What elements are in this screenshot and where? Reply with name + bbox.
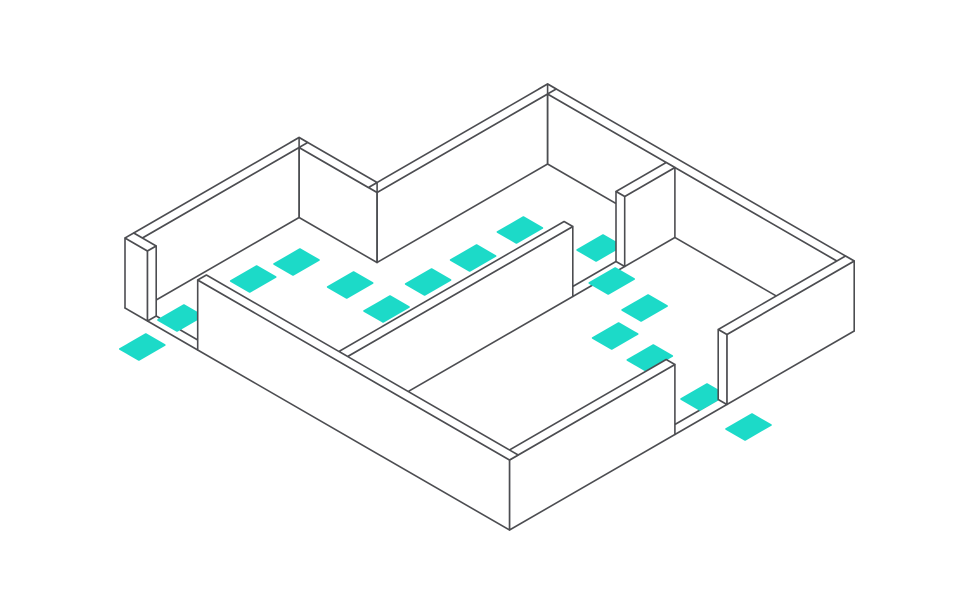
footprint-marker — [328, 272, 373, 298]
footprint-marker — [589, 268, 634, 294]
footprint-marker — [120, 334, 165, 360]
isometric-floorplan-illustration — [0, 0, 980, 600]
footprint-marker — [231, 266, 276, 292]
footprint-marker — [726, 414, 771, 440]
se-door-jamb — [718, 330, 727, 405]
west-door-jamb — [148, 246, 157, 321]
footprint-marker — [158, 305, 203, 331]
wall-front-right-south-face — [510, 365, 675, 531]
footprint-marker — [593, 323, 638, 349]
divider-door-jamb — [616, 192, 625, 267]
wall-front-left-stub-face — [125, 238, 148, 321]
footprint-marker — [274, 249, 319, 275]
footprint-marker — [622, 295, 667, 321]
floorplan-svg — [0, 0, 980, 600]
